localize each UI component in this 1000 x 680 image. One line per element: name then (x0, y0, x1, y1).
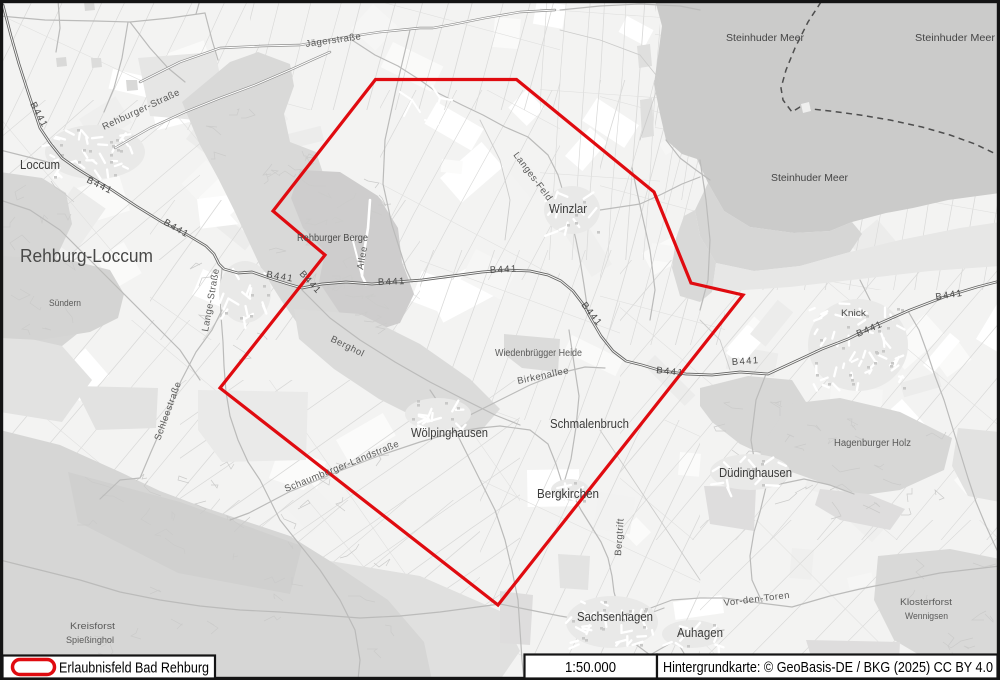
svg-text:B441: B441 (378, 276, 406, 288)
svg-text:Rehburg-Loccum: Rehburg-Loccum (20, 245, 153, 266)
svg-text:B441: B441 (490, 264, 518, 276)
svg-text:Rehburger Berge: Rehburger Berge (297, 233, 368, 244)
svg-text:Sachsenhagen: Sachsenhagen (577, 609, 653, 624)
svg-text:Steinhuder Meer: Steinhuder Meer (771, 172, 848, 184)
svg-text:Wölpinghausen: Wölpinghausen (411, 425, 488, 440)
svg-text:Loccum: Loccum (20, 157, 60, 172)
svg-text:B441: B441 (731, 355, 759, 368)
svg-text:Bergkirchen: Bergkirchen (537, 486, 599, 501)
svg-text:Schmalenbruch: Schmalenbruch (550, 416, 629, 431)
svg-text:Düdinghausen: Düdinghausen (719, 465, 792, 480)
svg-text:Steinhuder Meer: Steinhuder Meer (915, 32, 996, 44)
svg-text:Wiedenbrügger Heide: Wiedenbrügger Heide (495, 348, 582, 359)
svg-text:Spießinghol: Spießinghol (66, 635, 114, 646)
svg-text:Auhagen: Auhagen (677, 625, 723, 640)
svg-text:Erlaubnisfeld Bad Rehburg: Erlaubnisfeld Bad Rehburg (59, 661, 209, 677)
svg-text:Sündern: Sündern (49, 298, 81, 309)
svg-text:Knick: Knick (841, 308, 866, 319)
svg-text:Winzlar: Winzlar (549, 201, 588, 216)
svg-text:Hagenburger Holz: Hagenburger Holz (834, 438, 911, 449)
svg-text:Hintergrundkarte: © GeoBasis-D: Hintergrundkarte: © GeoBasis-DE / BKG (2… (663, 660, 993, 676)
svg-text:1:50.000: 1:50.000 (565, 660, 616, 676)
svg-text:Klosterforst: Klosterforst (900, 597, 952, 608)
svg-text:Kreisforst: Kreisforst (70, 621, 115, 632)
svg-text:Steinhuder Meer: Steinhuder Meer (726, 32, 804, 44)
svg-text:Wennigsen: Wennigsen (905, 611, 948, 622)
